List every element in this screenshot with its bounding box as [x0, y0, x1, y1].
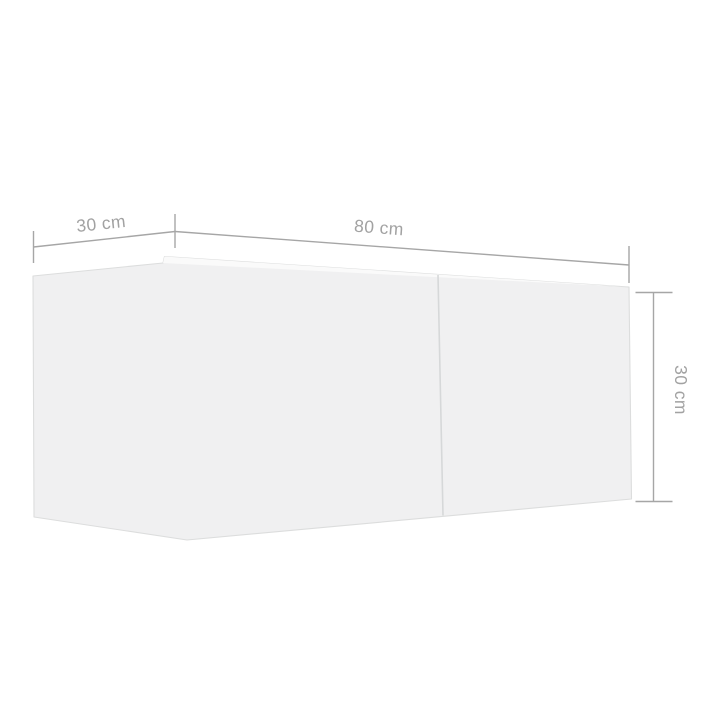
height-dimension: [636, 293, 673, 502]
product-dimension-image: 30 cm 80 cm 30 cm: [0, 0, 720, 720]
cabinet-body: [33, 257, 632, 541]
depth-measure-line: [34, 232, 176, 248]
width-dimension-label: 80 cm: [353, 216, 404, 240]
cabinet: [33, 257, 632, 541]
depth-dimension-label: 30 cm: [75, 211, 126, 236]
dimension-diagram: 30 cm 80 cm 30 cm: [0, 0, 720, 720]
height-dimension-label: 30 cm: [671, 365, 691, 415]
